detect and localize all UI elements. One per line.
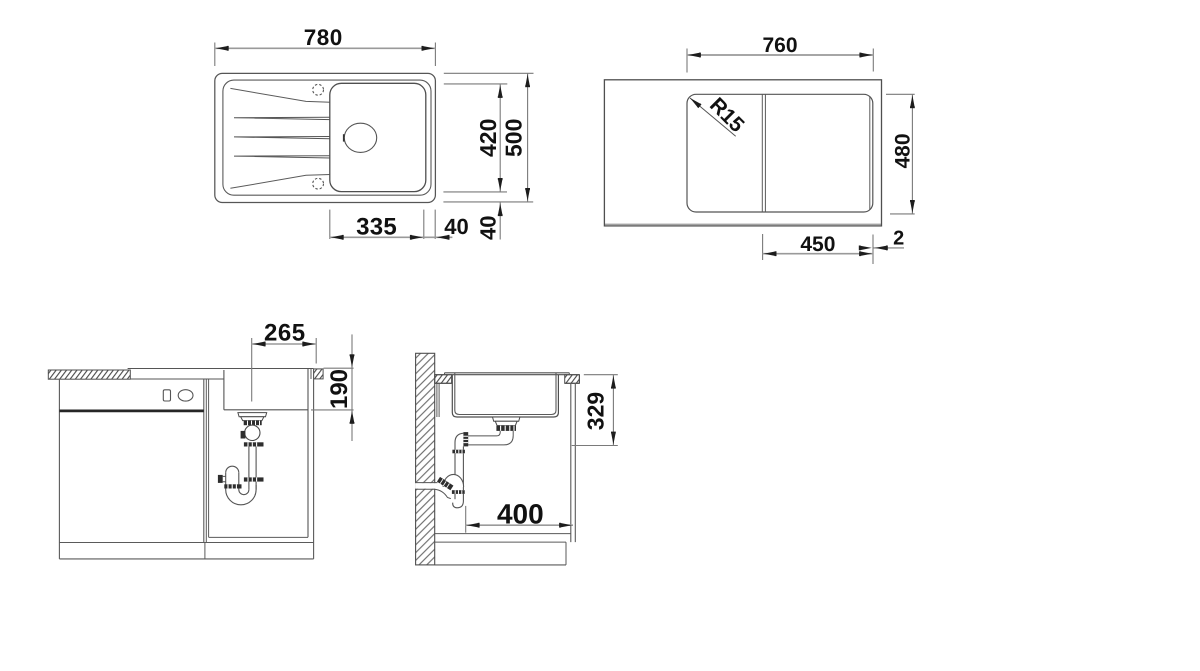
svg-text:40: 40	[444, 214, 468, 239]
svg-text:760: 760	[762, 34, 797, 57]
svg-text:450: 450	[800, 233, 835, 256]
svg-text:2: 2	[893, 227, 904, 249]
svg-text:190: 190	[326, 369, 353, 409]
svg-text:329: 329	[583, 392, 609, 430]
svg-text:500: 500	[501, 119, 527, 157]
svg-text:420: 420	[475, 119, 501, 157]
svg-text:335: 335	[356, 214, 397, 241]
svg-text:40: 40	[475, 215, 500, 239]
svg-text:480: 480	[892, 133, 915, 168]
svg-text:400: 400	[497, 498, 544, 529]
svg-text:780: 780	[304, 25, 343, 50]
svg-text:265: 265	[264, 320, 306, 347]
